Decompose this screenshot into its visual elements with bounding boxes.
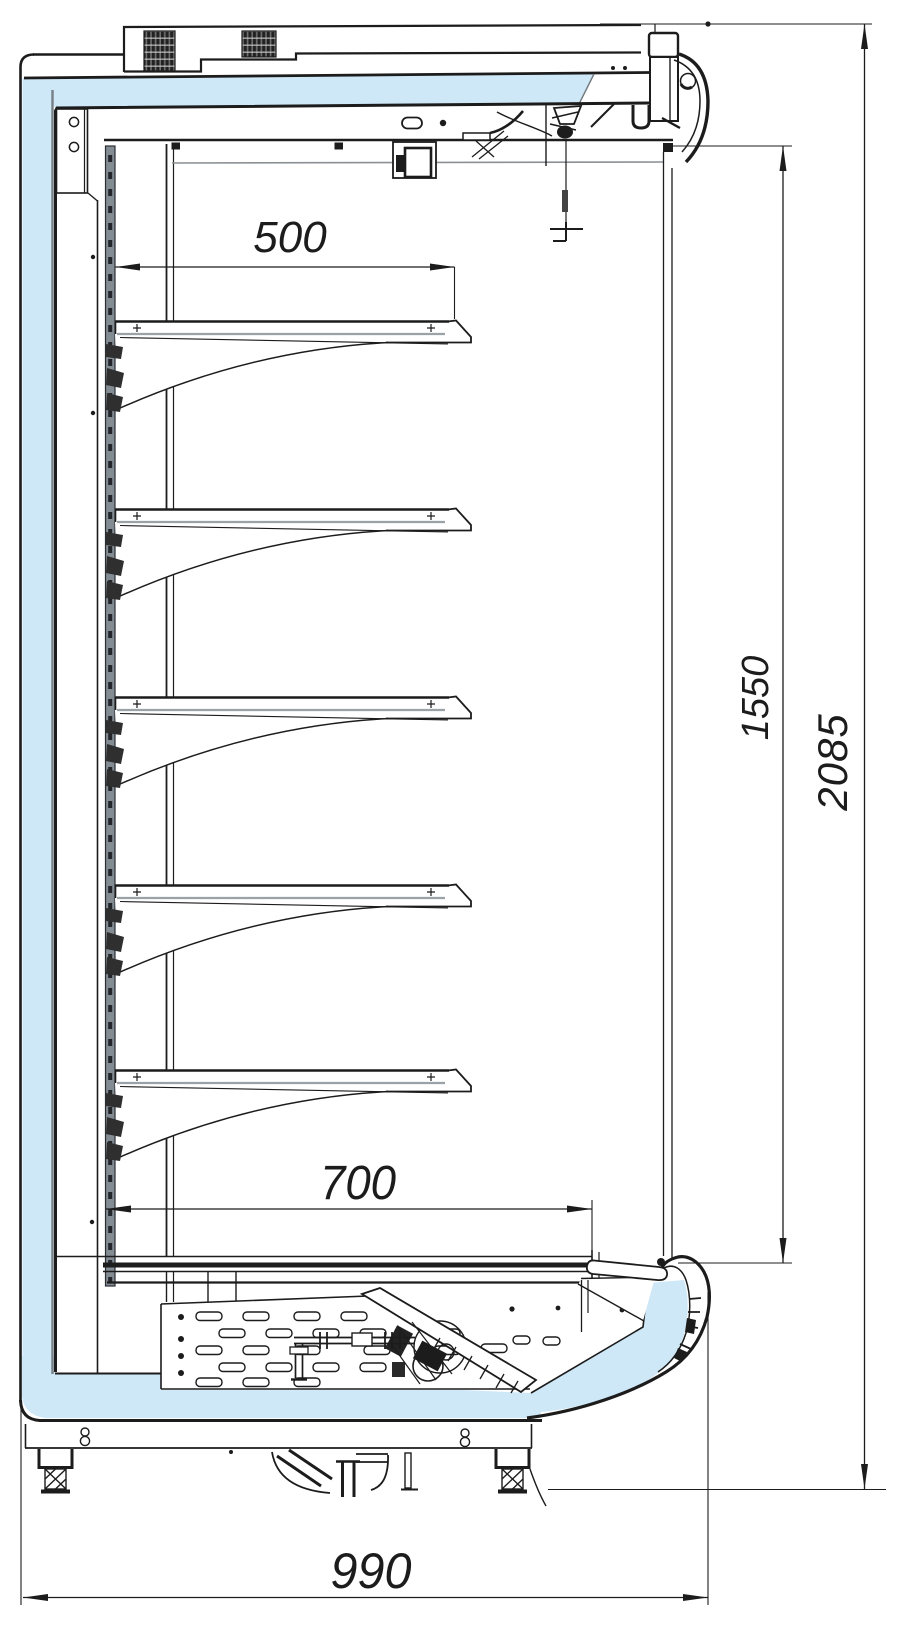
svg-text:990: 990 — [331, 1543, 412, 1599]
svg-text:2085: 2085 — [809, 713, 856, 811]
svg-text:500: 500 — [253, 213, 327, 262]
svg-text:700: 700 — [320, 1156, 396, 1209]
svg-text:1550: 1550 — [735, 656, 777, 741]
